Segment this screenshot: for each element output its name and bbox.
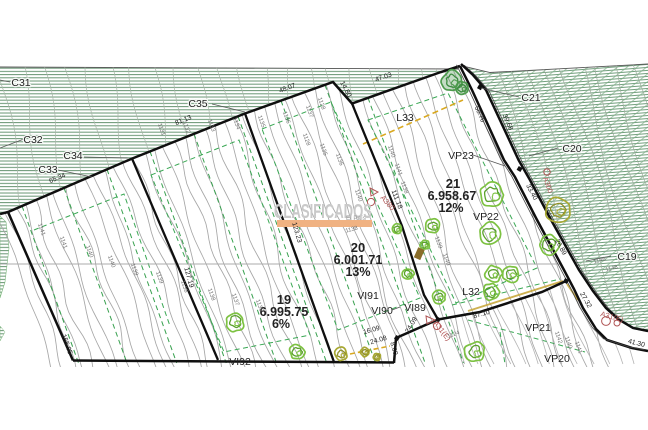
svg-text:C20: C20: [562, 143, 581, 155]
svg-text:6%: 6%: [272, 317, 290, 331]
svg-text:C35: C35: [188, 98, 207, 110]
svg-text:VI89: VI89: [404, 302, 426, 314]
svg-text:13%: 13%: [345, 265, 370, 279]
svg-text:VI91: VI91: [357, 290, 379, 302]
svg-text:VP21: VP21: [525, 322, 551, 334]
svg-text:C19: C19: [617, 251, 636, 263]
svg-text:L32: L32: [462, 286, 480, 298]
svg-text:VP23: VP23: [448, 150, 474, 162]
svg-text:VI90: VI90: [371, 305, 393, 317]
svg-text:VI92: VI92: [229, 356, 251, 368]
svg-text:C31: C31: [11, 77, 30, 89]
svg-text:VP22: VP22: [473, 211, 499, 223]
svg-text:12%: 12%: [438, 201, 463, 215]
svg-text:C34: C34: [63, 150, 82, 162]
svg-text:VP20: VP20: [544, 353, 570, 365]
svg-text:C32: C32: [23, 134, 42, 146]
svg-text:C33: C33: [38, 164, 57, 176]
svg-text:C21: C21: [521, 92, 540, 104]
svg-text:El País: El País: [346, 215, 366, 222]
svg-text:L33: L33: [396, 112, 414, 124]
